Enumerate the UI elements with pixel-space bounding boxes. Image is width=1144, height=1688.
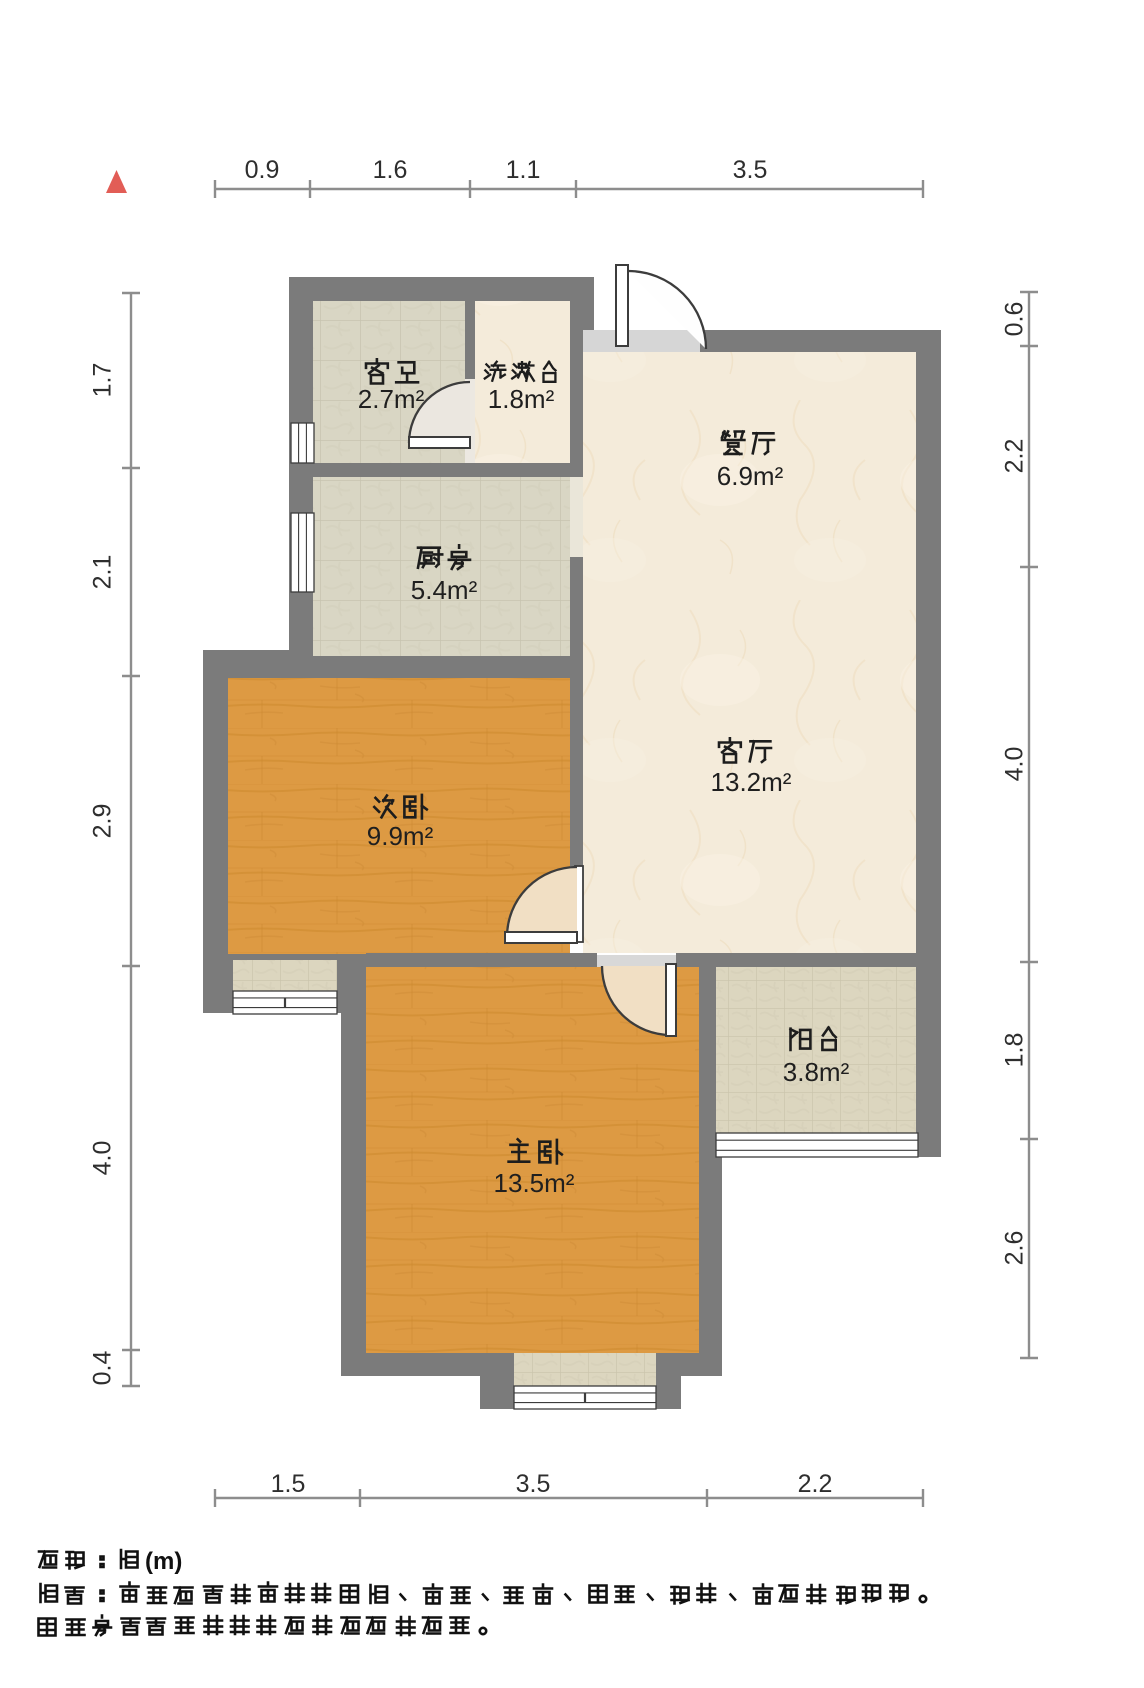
svg-text:4.0: 4.0 [1001, 747, 1029, 782]
svg-text:2.6: 2.6 [1001, 1231, 1029, 1266]
svg-text:1.5: 1.5 [271, 1470, 306, 1498]
svg-text:13.2m²: 13.2m² [711, 767, 792, 797]
svg-text:2.1: 2.1 [89, 555, 117, 590]
svg-text:4.0: 4.0 [89, 1141, 117, 1176]
svg-text:3.5: 3.5 [516, 1470, 551, 1498]
svg-text:5.4m²: 5.4m² [411, 575, 478, 605]
svg-text:9.9m²: 9.9m² [367, 821, 434, 851]
svg-text:1.8m²: 1.8m² [488, 384, 555, 414]
svg-text:13.5m²: 13.5m² [494, 1168, 575, 1198]
svg-text:(m): (m) [145, 1548, 182, 1575]
svg-text:6.9m²: 6.9m² [717, 461, 784, 491]
svg-text:0.6: 0.6 [1001, 302, 1029, 337]
svg-text:0.4: 0.4 [89, 1351, 117, 1386]
svg-text:1.8: 1.8 [1001, 1033, 1029, 1068]
svg-text:2.9: 2.9 [89, 804, 117, 839]
svg-text:3.5: 3.5 [733, 156, 768, 184]
svg-text:1.6: 1.6 [373, 156, 408, 184]
svg-text:0.9: 0.9 [245, 156, 280, 184]
svg-text:2.2: 2.2 [1001, 439, 1029, 474]
svg-text:2.2: 2.2 [798, 1470, 833, 1498]
svg-text:3.8m²: 3.8m² [783, 1057, 850, 1087]
svg-text:1.7: 1.7 [89, 363, 117, 398]
svg-text:1.1: 1.1 [506, 156, 541, 184]
svg-text:2.7m²: 2.7m² [358, 384, 425, 414]
